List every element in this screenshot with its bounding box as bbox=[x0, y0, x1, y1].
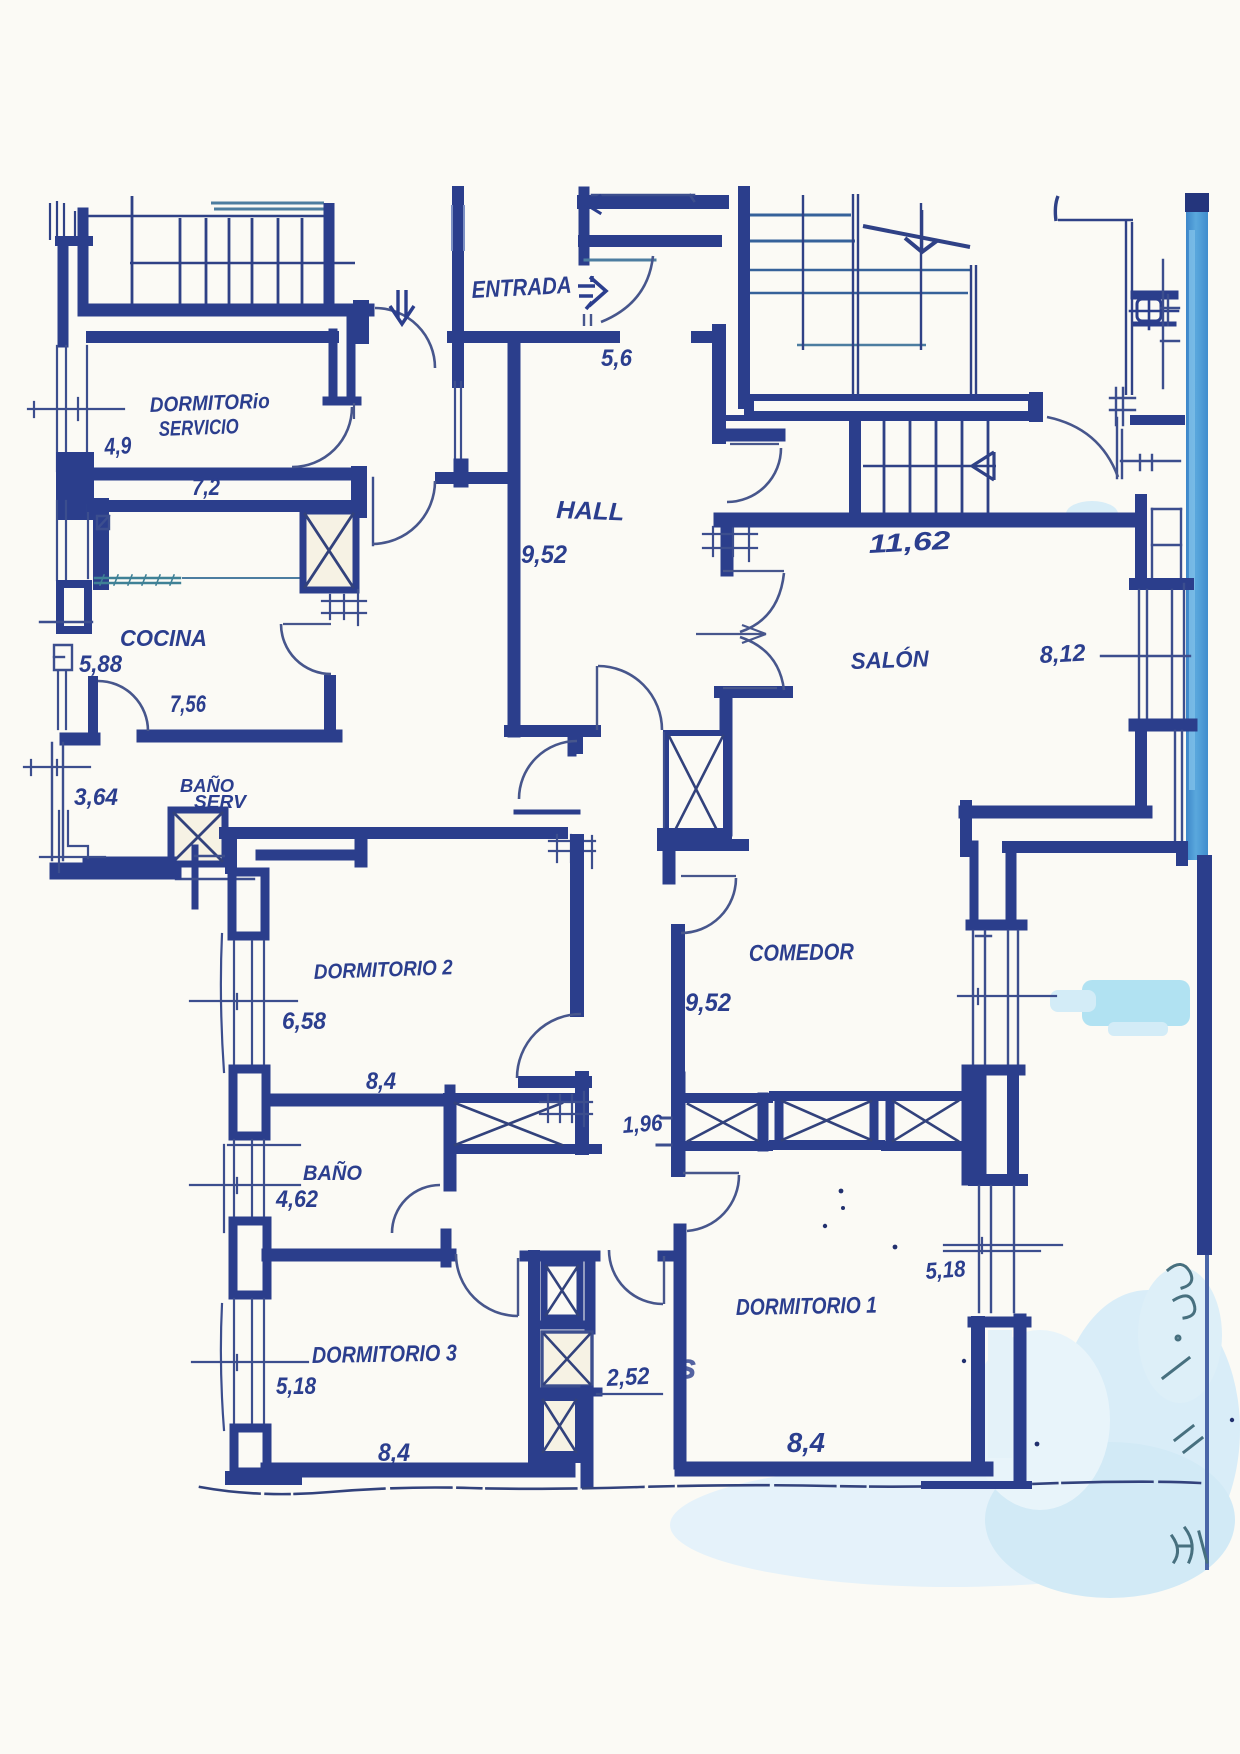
svg-text:8,4: 8,4 bbox=[787, 1427, 825, 1458]
svg-text:HALL: HALL bbox=[556, 496, 625, 526]
svg-text:ENTRADA: ENTRADA bbox=[471, 272, 572, 304]
svg-text:8,4: 8,4 bbox=[366, 1068, 396, 1095]
svg-text:7,2: 7,2 bbox=[192, 474, 221, 501]
svg-text:DORMITORIO 2: DORMITORIO 2 bbox=[313, 956, 453, 984]
svg-text:BAÑO: BAÑO bbox=[303, 1162, 362, 1185]
svg-text:1,96: 1,96 bbox=[622, 1109, 664, 1138]
svg-text:9,52: 9,52 bbox=[685, 989, 731, 1017]
svg-text:COCINA: COCINA bbox=[120, 625, 207, 651]
svg-text:6,58: 6,58 bbox=[282, 1008, 327, 1035]
svg-text:7,56: 7,56 bbox=[170, 691, 206, 718]
svg-text:SERVICIO: SERVICIO bbox=[158, 415, 239, 441]
svg-text:SERV: SERV bbox=[194, 792, 248, 812]
svg-text:5,6: 5,6 bbox=[601, 345, 633, 372]
svg-text:11,62: 11,62 bbox=[868, 525, 952, 559]
svg-text:DORMITORIO 3: DORMITORIO 3 bbox=[312, 1339, 458, 1368]
svg-text:9,52: 9,52 bbox=[521, 541, 567, 569]
svg-text:SALÓN: SALÓN bbox=[850, 644, 929, 674]
svg-text:8,4: 8,4 bbox=[378, 1439, 410, 1467]
svg-text:8,12: 8,12 bbox=[1039, 640, 1087, 669]
svg-text:S: S bbox=[678, 1354, 696, 1384]
svg-text:5,88: 5,88 bbox=[79, 651, 123, 678]
svg-text:4,9: 4,9 bbox=[103, 432, 133, 461]
svg-text:DORMITORIO 1: DORMITORIO 1 bbox=[736, 1292, 877, 1320]
svg-text:4,62: 4,62 bbox=[275, 1186, 318, 1213]
svg-text:3,64: 3,64 bbox=[74, 784, 118, 811]
svg-text:5,18: 5,18 bbox=[925, 1255, 967, 1284]
svg-text:DORMITORio: DORMITORio bbox=[149, 390, 270, 417]
svg-text:5,18: 5,18 bbox=[276, 1373, 317, 1400]
svg-text:COMEDOR: COMEDOR bbox=[749, 938, 855, 966]
svg-text:2,52: 2,52 bbox=[605, 1363, 651, 1392]
